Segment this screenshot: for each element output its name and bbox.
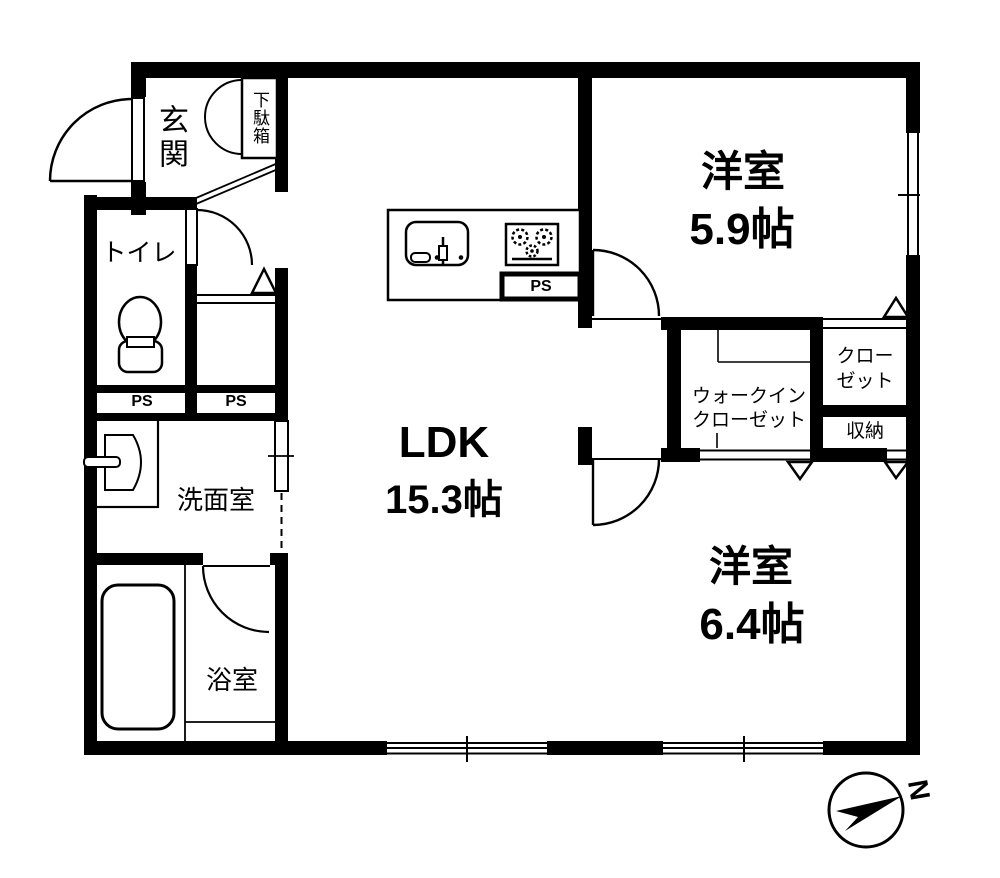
hallway-storage-triangle bbox=[252, 269, 276, 293]
wall-segment bbox=[185, 265, 197, 391]
wall-segment bbox=[275, 553, 288, 749]
walk-in-closet-label-line1: ウォークイン bbox=[679, 385, 819, 407]
step-lines bbox=[196, 163, 278, 204]
floor-plan: N 玄関 下駄箱 トイレ 洗面室 浴室 LDK 15.3帖 洋室 5.9帖 洋室… bbox=[0, 0, 1000, 878]
bedroom2-size: 6.4帖 bbox=[632, 599, 872, 651]
closet-doorway bbox=[823, 298, 908, 328]
wall-segment bbox=[270, 553, 288, 565]
wall-segment bbox=[275, 268, 288, 421]
hall-ps-label: PS bbox=[197, 391, 275, 412]
wall-segment bbox=[578, 427, 592, 465]
wall-segment bbox=[661, 448, 700, 462]
bedroom1-door-arc bbox=[592, 250, 661, 319]
compass-north-label: N bbox=[902, 777, 936, 802]
window-bottom-right bbox=[663, 736, 823, 762]
storage-label: 収納 bbox=[815, 419, 915, 443]
shoe-cabinet-label: 下駄箱 bbox=[243, 79, 276, 157]
bedroom1-size: 5.9帖 bbox=[622, 204, 862, 256]
storage-doorway bbox=[885, 451, 908, 479]
bedroom2-door-arc bbox=[592, 459, 661, 525]
wall-segment bbox=[812, 448, 887, 462]
walk-in-closet-label-line2: クローゼット bbox=[679, 409, 819, 431]
wall-segment bbox=[84, 197, 197, 210]
wall-segment bbox=[84, 741, 387, 755]
bedroom2-label: 洋室 bbox=[631, 543, 871, 591]
toilet-ps-label: PS bbox=[99, 391, 185, 412]
ldk-label: LDK bbox=[324, 419, 564, 467]
bathtub-icon bbox=[102, 585, 174, 729]
bathroom-lines bbox=[185, 565, 275, 741]
shoe-cabinet-doors bbox=[205, 80, 242, 154]
wall-segment bbox=[131, 62, 920, 78]
wall-segment bbox=[906, 62, 920, 133]
wall-segment bbox=[810, 405, 920, 417]
washroom-label: 洗面室 bbox=[136, 484, 296, 516]
kitchen-ps-label: PS bbox=[502, 276, 580, 297]
window-bottom-left bbox=[387, 736, 547, 762]
compass-icon: N bbox=[829, 773, 936, 847]
wall-segment bbox=[547, 741, 663, 755]
window-right bbox=[898, 133, 920, 255]
wic-doorway bbox=[700, 451, 812, 480]
closet-label-line2: ゼット bbox=[815, 369, 915, 393]
entrance-label: 玄関 bbox=[146, 88, 194, 188]
hallway-storage bbox=[197, 269, 276, 303]
closet-door-triangle bbox=[884, 298, 908, 317]
toilet-label: トイレ bbox=[96, 237, 182, 269]
closet-label-line1: クロー bbox=[815, 344, 915, 368]
bedroom1-label: 洋室 bbox=[623, 148, 863, 196]
wall-segment bbox=[823, 741, 920, 755]
wic-door-triangle bbox=[788, 462, 812, 479]
toilet-icon bbox=[119, 297, 162, 372]
toilet-door-arc bbox=[186, 209, 252, 265]
wall-segment bbox=[661, 317, 823, 330]
ldk-size: 15.3帖 bbox=[324, 477, 564, 523]
wall-segment bbox=[84, 553, 203, 565]
wall-segment bbox=[906, 255, 920, 755]
entrance-door-arc bbox=[50, 98, 144, 181]
wall-segment bbox=[131, 62, 146, 97]
storage-door-triangle bbox=[885, 462, 908, 478]
bathroom-door-arc bbox=[203, 566, 270, 632]
wall-segment bbox=[185, 385, 197, 421]
bathroom-label: 浴室 bbox=[152, 664, 312, 696]
